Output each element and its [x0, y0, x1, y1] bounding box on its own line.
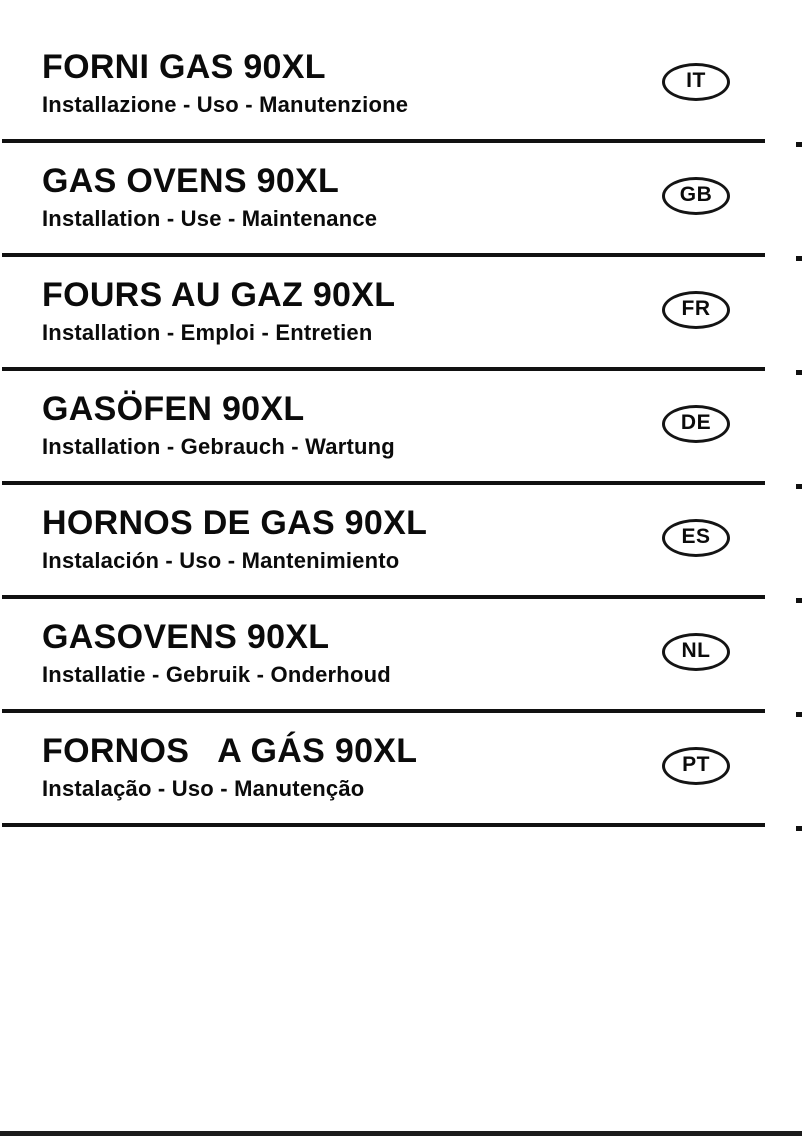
language-code: GB: [680, 183, 713, 207]
language-code: IT: [686, 69, 706, 93]
language-code: ES: [681, 525, 710, 549]
section-nl: GASOVENS 90XL Installatie - Gebruik - On…: [0, 599, 802, 713]
language-badge: PT: [662, 747, 730, 785]
section-pt: FORNOS A GÁS 90XL Instalação - Uso - Man…: [0, 713, 802, 827]
language-code: DE: [681, 411, 711, 435]
section-de: GASÖFEN 90XL Installation - Gebrauch - W…: [0, 371, 802, 485]
manual-cover-page: FORNI GAS 90XL Installazione - Uso - Man…: [0, 0, 802, 1136]
language-badge: GB: [662, 177, 730, 215]
language-sections: FORNI GAS 90XL Installazione - Uso - Man…: [0, 29, 802, 827]
language-badge: IT: [662, 63, 730, 101]
language-badge: ES: [662, 519, 730, 557]
language-code: NL: [682, 639, 711, 663]
section-fr: FOURS AU GAZ 90XL Installation - Emploi …: [0, 257, 802, 371]
language-badge: NL: [662, 633, 730, 671]
edge-tick-mark: [796, 826, 802, 831]
language-badge: DE: [662, 405, 730, 443]
section-it: FORNI GAS 90XL Installazione - Uso - Man…: [0, 29, 802, 143]
language-code: PT: [682, 753, 710, 777]
page-bottom-edge-line: [0, 1131, 802, 1136]
section-gb: GAS OVENS 90XL Installation - Use - Main…: [0, 143, 802, 257]
language-code: FR: [682, 297, 711, 321]
language-badge: FR: [662, 291, 730, 329]
section-divider: [2, 823, 765, 827]
section-es: HORNOS DE GAS 90XL Instalación - Uso - M…: [0, 485, 802, 599]
